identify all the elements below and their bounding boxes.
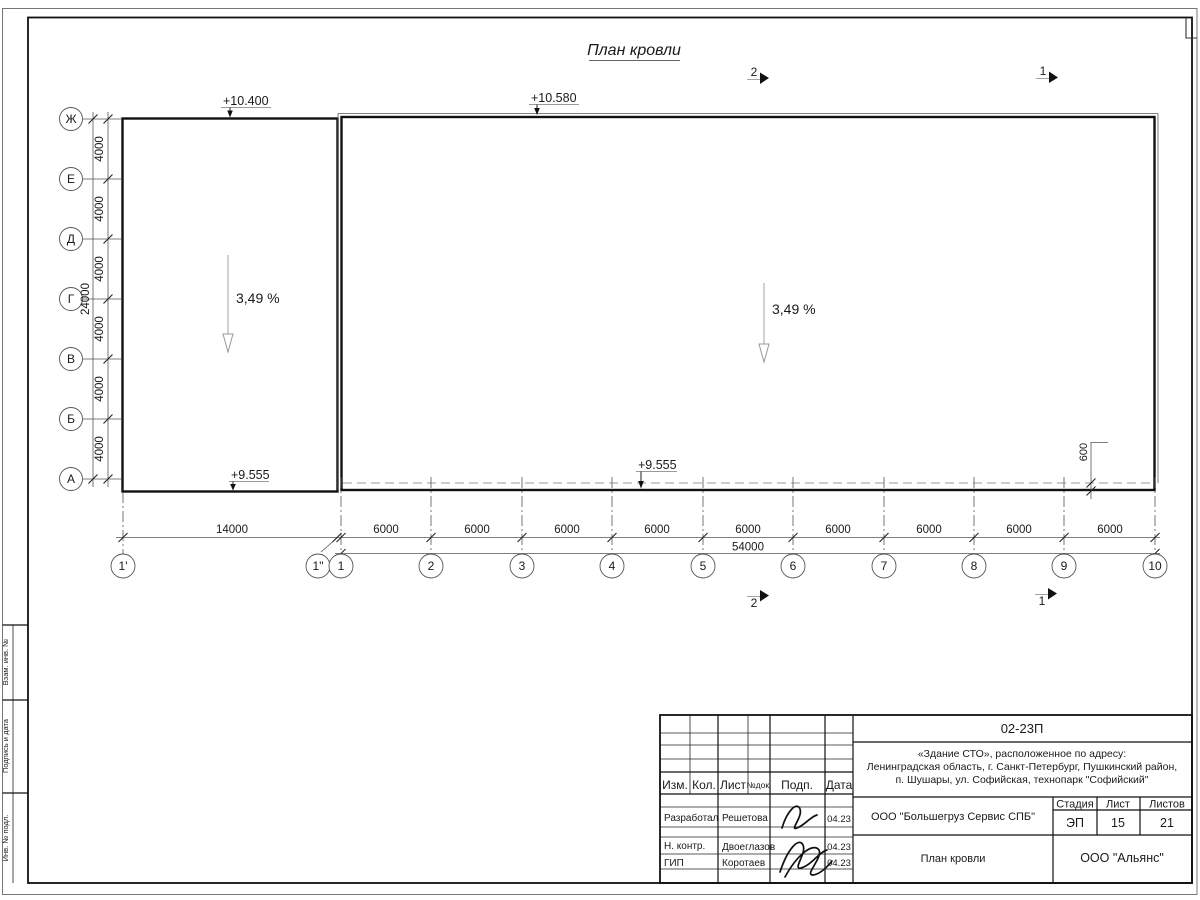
- change-table-header: Дата: [826, 778, 853, 792]
- dim-label: 4000: [94, 376, 106, 402]
- side-stamp-label: Инв. № подл.: [1, 815, 10, 862]
- section-mark-1-bottom: 1: [1035, 588, 1057, 608]
- drawing-title: План кровли: [587, 42, 681, 59]
- change-table-header: Лист: [720, 778, 747, 792]
- axis-bubble-label: 5: [700, 559, 707, 573]
- change-table-header: Изм.: [662, 778, 688, 792]
- sign-date: 04.23: [827, 842, 851, 853]
- section-mark-2-bottom: 2: [747, 590, 769, 610]
- axis-bubble-label: 1": [313, 559, 324, 573]
- roof-plan-canvas: Взам. инв. № Подпись и дата Инв. № подл.…: [0, 0, 1200, 900]
- dim-label: 4000: [94, 436, 106, 462]
- section-number: 2: [751, 596, 758, 610]
- sheets-total: 21: [1160, 816, 1174, 830]
- dim-label: 6000: [1097, 524, 1123, 536]
- elevation-value: +9.555: [231, 468, 270, 482]
- dim-label: 600: [1078, 443, 1090, 461]
- stage-label: Стадия: [1056, 799, 1094, 811]
- axis-bubble-label: Д: [67, 232, 75, 246]
- slope-arrow-right: 3,49 %: [759, 283, 816, 362]
- stage-value: ЭП: [1066, 816, 1084, 830]
- dim-label: 6000: [464, 524, 490, 536]
- dim-label: 6000: [825, 524, 851, 536]
- sign-date: 04.23: [827, 814, 851, 825]
- bottom-dimensions: 14000 6000 6000 6000 6000 6000 6000 6000…: [116, 524, 1160, 558]
- dim-total-label: 24000: [80, 283, 92, 315]
- elevation-value: +10.400: [223, 94, 269, 108]
- left-dimensions: 4000 4000 4000 4000 4000 4000 24000: [80, 112, 113, 487]
- dim-label: 4000: [94, 256, 106, 282]
- section-number: 1: [1040, 64, 1047, 78]
- side-stamp-label: Взам. инв. №: [1, 639, 10, 685]
- elevation-mark-right-top: +10.580: [529, 91, 579, 115]
- project-address-line: Ленинградская область, г. Санкт-Петербур…: [867, 761, 1177, 773]
- axis-bubble-label: 4: [609, 559, 616, 573]
- axis-bubble-label: 1: [338, 559, 345, 573]
- axis-bubble-label: 2: [428, 559, 435, 573]
- dim-label: 6000: [916, 524, 942, 536]
- project-address-line: «Здание СТО», расположенное по адресу:: [918, 748, 1126, 760]
- dim-label: 6000: [373, 524, 399, 536]
- sheet-title: План кровли: [921, 853, 986, 865]
- dim-label: 6000: [1006, 524, 1032, 536]
- signer-role: Разработал: [664, 812, 719, 824]
- dim-label: 4000: [94, 196, 106, 222]
- axis-bubble-label: 6: [790, 559, 797, 573]
- bottom-axes: 1' 1" 1 2 3 4 5 6 7 8 9 10: [111, 554, 1167, 578]
- section-mark-1-top: 1: [1036, 64, 1058, 83]
- axis-bubble-label: Е: [67, 172, 75, 186]
- change-table-header: Подп.: [781, 778, 813, 792]
- signer-role: ГИП: [664, 858, 684, 869]
- side-stamp-label: Подпись и дата: [1, 718, 10, 773]
- elevation-mark-left-top: +10.400: [221, 94, 271, 118]
- dim-label: 4000: [94, 136, 106, 162]
- axis-bubble-label: 9: [1061, 559, 1068, 573]
- signature: [782, 806, 817, 828]
- company-name: ООО "Альянс": [1080, 851, 1164, 865]
- slope-arrow-left: 3,49 %: [223, 255, 280, 352]
- section-mark-2-top: 2: [747, 65, 769, 84]
- signer-role: Н. контр.: [664, 841, 705, 852]
- axis-bubble-label: 7: [881, 559, 888, 573]
- elevation-value: +10.580: [531, 91, 577, 105]
- signer-name: Коротаев: [722, 858, 765, 869]
- axis-bubble-label: Б: [67, 412, 75, 426]
- elevation-mark-right-bottom: +9.555: [636, 458, 677, 489]
- project-address-line: п. Шушары, ул. Софийская, технопарк "Соф…: [896, 774, 1149, 786]
- sheets-label: Листов: [1149, 799, 1185, 811]
- dim-label: 4000: [94, 316, 106, 342]
- dim-label: 6000: [554, 524, 580, 536]
- signature: [780, 842, 832, 877]
- axis-bubble-label: А: [67, 472, 75, 486]
- axis-bubble-label: В: [67, 352, 75, 366]
- doc-number: 02-23П: [1001, 721, 1044, 736]
- org-name: ООО "Большегруз Сервис СПБ": [871, 811, 1035, 823]
- bottom-axis-lines: [123, 477, 1155, 554]
- side-stamp: Взам. инв. № Подпись и дата Инв. № подл.: [1, 625, 28, 883]
- right-building-outline: [338, 114, 1158, 491]
- dim-label: 6000: [735, 524, 761, 536]
- axis-bubble-label: Г: [68, 292, 75, 306]
- slope-value: 3,49 %: [236, 290, 280, 306]
- signer-name: Двоеглазов: [722, 842, 775, 853]
- section-number: 1: [1039, 594, 1046, 608]
- axis-bubble-label: 3: [519, 559, 526, 573]
- left-building-outline: [123, 119, 338, 492]
- title-block: Изм. Кол. Лист №док. Подп. Дата Разработ…: [660, 715, 1192, 883]
- sheet-label: Лист: [1106, 799, 1130, 811]
- dim-total-label: 54000: [732, 542, 764, 554]
- dim-label: 14000: [216, 524, 248, 536]
- change-table-header: №док.: [747, 780, 772, 790]
- drawing-sheet: Взам. инв. № Подпись и дата Инв. № подл.…: [0, 0, 1200, 900]
- axis-bubble-label: Ж: [65, 112, 76, 126]
- sheet-number: 15: [1111, 816, 1125, 830]
- elevation-mark-left-bottom: +9.555: [229, 468, 270, 491]
- axis-bubble-label: 8: [971, 559, 978, 573]
- dim-label: 6000: [644, 524, 670, 536]
- change-table-header: Кол.: [692, 778, 716, 792]
- axis-bubble-label: 10: [1148, 559, 1162, 573]
- elevation-value: +9.555: [638, 458, 677, 472]
- slope-value: 3,49 %: [772, 301, 816, 317]
- section-number: 2: [751, 65, 758, 79]
- signer-name: Решетова: [722, 813, 768, 824]
- axis-bubble-label: 1': [119, 559, 128, 573]
